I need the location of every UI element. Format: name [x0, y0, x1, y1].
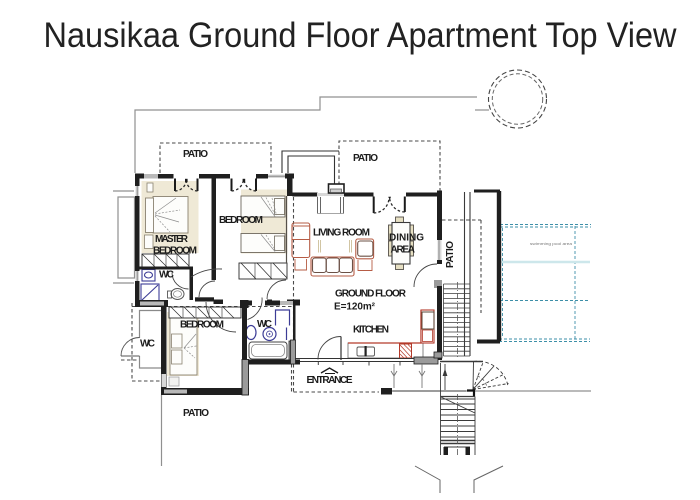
svg-text:DINING: DINING [389, 233, 424, 244]
svg-text:BEDROOM: BEDROOM [219, 215, 263, 226]
svg-text:AREA: AREA [391, 245, 416, 256]
svg-text:E=120m²: E=120m² [334, 302, 376, 313]
svg-text:MASTER: MASTER [155, 234, 189, 245]
svg-text:ENTRANCE: ENTRANCE [307, 375, 353, 386]
svg-text:PATIO: PATIO [183, 149, 208, 160]
svg-text:PATIO: PATIO [353, 153, 378, 164]
svg-text:PATIO: PATIO [445, 241, 456, 268]
svg-text:WC: WC [257, 319, 272, 330]
svg-text:KITCHEN: KITCHEN [353, 325, 389, 336]
svg-text:BEDROOM: BEDROOM [153, 246, 197, 257]
svg-text:LIVING ROOM: LIVING ROOM [313, 228, 370, 239]
svg-text:BEDROOM: BEDROOM [180, 320, 224, 331]
svg-text:GROUND FLOOR: GROUND FLOOR [335, 289, 407, 300]
svg-text:WC: WC [159, 270, 174, 281]
svg-text:WC: WC [140, 339, 155, 350]
svg-text:swimming pool area: swimming pool area [530, 241, 573, 246]
svg-text:PATIO: PATIO [183, 408, 209, 419]
svg-text:Nausikaa Ground Floor Apartmen: Nausikaa Ground Floor Apartment Top View [44, 16, 678, 55]
